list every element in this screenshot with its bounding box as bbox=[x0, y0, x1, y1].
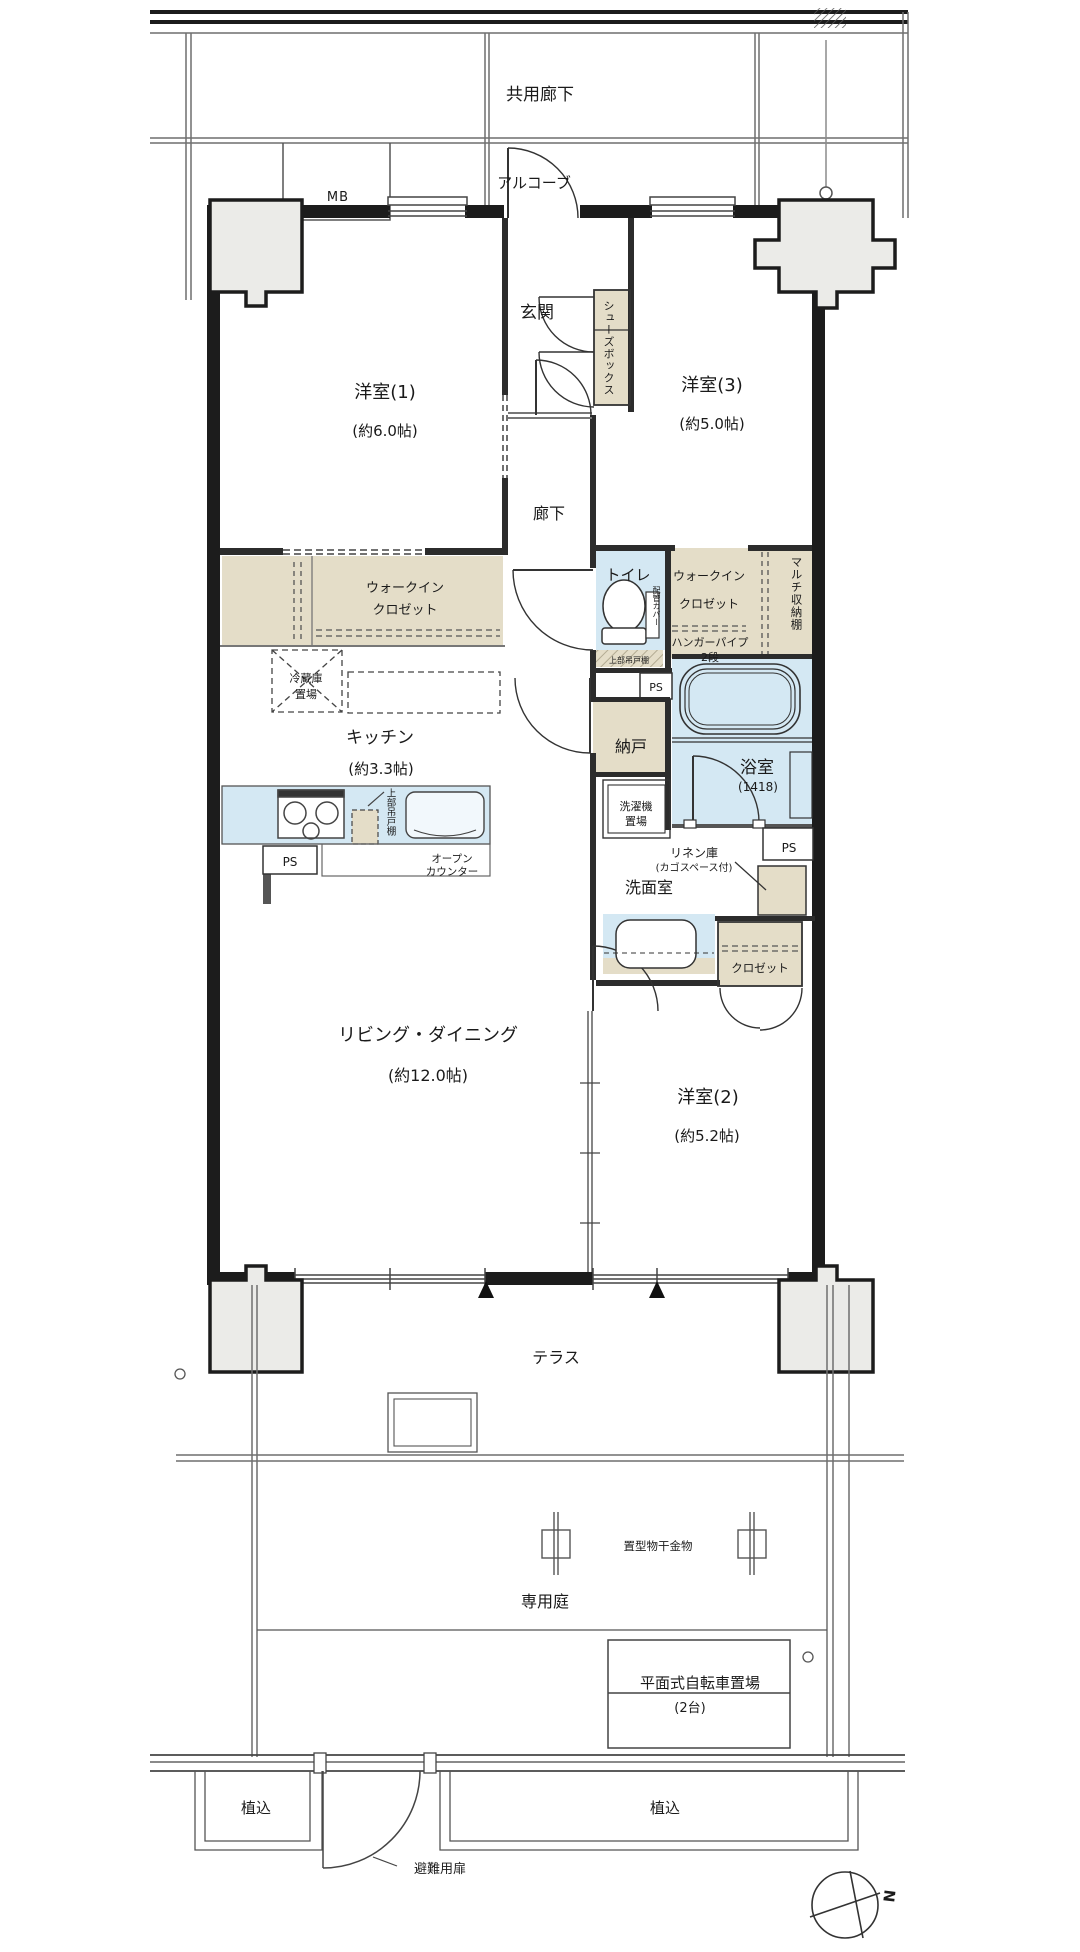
pillar-bottom-right bbox=[779, 1266, 873, 1372]
label-room1-size: (約6.0帖) bbox=[352, 422, 418, 440]
label-room1: 洋室(1) bbox=[354, 382, 416, 403]
walkin-closet1-area bbox=[222, 556, 503, 646]
marker-circle bbox=[803, 1652, 813, 1662]
label-ps-toilet: PS bbox=[649, 681, 663, 694]
movable-partition bbox=[580, 1011, 600, 1272]
label-kitchen-upper-cabinet: 上部吊戸棚 bbox=[385, 788, 395, 836]
label-open-counter-1: オープン bbox=[431, 853, 472, 865]
window-bottom-living bbox=[295, 1268, 485, 1290]
label-linen-1: リネン庫 bbox=[670, 846, 718, 860]
label-linen-2: (カゴスペース付) bbox=[656, 861, 733, 874]
washroom-door bbox=[515, 678, 590, 753]
laundry-pole-left bbox=[542, 1512, 570, 1575]
label-planting-right: 植込 bbox=[650, 1799, 680, 1817]
label-kitchen: キッチン bbox=[346, 728, 414, 748]
band-hatch bbox=[814, 8, 846, 28]
label-room2: 洋室(2) bbox=[677, 1087, 739, 1108]
label-living-size: (約12.0帖) bbox=[388, 1066, 468, 1085]
label-bath-size: (1418) bbox=[738, 780, 778, 794]
label-private-garden: 専用庭 bbox=[521, 1592, 569, 1611]
label-terrace: テラス bbox=[532, 1348, 580, 1367]
label-washroom: 洗面室 bbox=[625, 878, 673, 897]
hall-entrance-door bbox=[536, 360, 591, 415]
stove bbox=[278, 790, 344, 839]
label-compass-north: N bbox=[879, 1889, 898, 1904]
label-bath: 浴室 bbox=[740, 758, 774, 778]
floorplan-drawing: 共用廊下 アルコーブ MB 玄関 洋室(1) (約6.0帖) 洋室(3) (約5… bbox=[0, 0, 1080, 1952]
laundry-pole-right bbox=[738, 1512, 766, 1575]
window-top-right bbox=[650, 197, 735, 216]
window-top-left bbox=[388, 197, 467, 216]
bicycle-parking-box bbox=[608, 1640, 790, 1748]
label-closet2: クロゼット bbox=[731, 961, 789, 975]
label-room2-size: (約5.2帖) bbox=[674, 1127, 740, 1145]
label-fridge-1: 冷蔵庫 bbox=[290, 671, 323, 685]
floorplan-page: 共用廊下 アルコーブ MB 玄関 洋室(1) (約6.0帖) 洋室(3) (約5… bbox=[0, 0, 1080, 1952]
label-ps-washroom: PS bbox=[782, 841, 797, 855]
label-common-corridor: 共用廊下 bbox=[506, 85, 574, 105]
closet2-area bbox=[718, 922, 802, 986]
label-toilet-upper-cabinet: 上部吊戸棚 bbox=[609, 655, 649, 665]
label-mb: MB bbox=[327, 190, 349, 205]
label-bicycle-2: (2台) bbox=[674, 1701, 705, 1716]
label-ps-kitchen: PS bbox=[283, 855, 298, 869]
label-evacuation-door: 避難用扉 bbox=[414, 1861, 466, 1877]
terrace-step bbox=[388, 1393, 477, 1452]
label-multi-storage: マルチ収納棚 bbox=[790, 556, 802, 631]
kitchen-upper-cabinet-area bbox=[352, 810, 378, 844]
label-storeroom: 納戸 bbox=[615, 737, 647, 756]
label-kitchen-size: (約3.3帖) bbox=[348, 760, 414, 778]
label-washer-1: 洗濯機 bbox=[620, 799, 653, 813]
pillar-bottom-left bbox=[210, 1266, 302, 1372]
label-laundry-fitting: 置型物干金物 bbox=[624, 1539, 693, 1553]
label-alcove: アルコーブ bbox=[497, 174, 571, 192]
evacuation-door bbox=[323, 1771, 420, 1868]
label-toilet: トイレ bbox=[605, 566, 650, 584]
label-hallway: 廊下 bbox=[533, 504, 565, 523]
closet2-folding-doors bbox=[720, 988, 802, 1030]
label-wic1-1: ウォークイン bbox=[366, 581, 444, 596]
label-fridge-2: 置場 bbox=[295, 688, 317, 701]
sink bbox=[406, 792, 484, 838]
linen-area bbox=[758, 866, 806, 915]
toilet-door bbox=[513, 570, 593, 650]
window-bottom-room2 bbox=[593, 1268, 788, 1290]
label-living: リビング・ダイニング bbox=[338, 1025, 518, 1046]
pillar-top-left bbox=[210, 200, 302, 306]
label-open-counter-2: カウンター bbox=[426, 866, 479, 878]
counter-dashed-area bbox=[348, 672, 500, 713]
compass bbox=[810, 1871, 880, 1938]
label-planting-left: 植込 bbox=[241, 1799, 271, 1817]
label-pipe-cover: 配管カバー bbox=[652, 586, 660, 626]
label-wic1-2: クロゼット bbox=[372, 603, 437, 618]
label-entrance: 玄関 bbox=[520, 303, 554, 323]
label-wic2-1: ウォークイン bbox=[673, 569, 745, 583]
room1-sliding-door bbox=[503, 395, 507, 478]
marker-circle bbox=[175, 1369, 185, 1379]
label-room3-size: (約5.0帖) bbox=[679, 415, 745, 433]
label-hanger-pipe-2: 2段 bbox=[701, 650, 719, 664]
label-room3: 洋室(3) bbox=[681, 375, 743, 396]
label-washer-2: 置場 bbox=[625, 815, 647, 828]
label-bicycle-1: 平面式自転車置場 bbox=[640, 1674, 760, 1692]
label-hanger-pipe-1: ハンガーパイプ bbox=[672, 636, 749, 649]
label-wic2-2: クロゼット bbox=[679, 597, 739, 611]
outdoor bbox=[150, 1285, 905, 1938]
label-shoes-box: シューズボックス bbox=[603, 300, 614, 396]
utility-circle bbox=[820, 187, 832, 199]
